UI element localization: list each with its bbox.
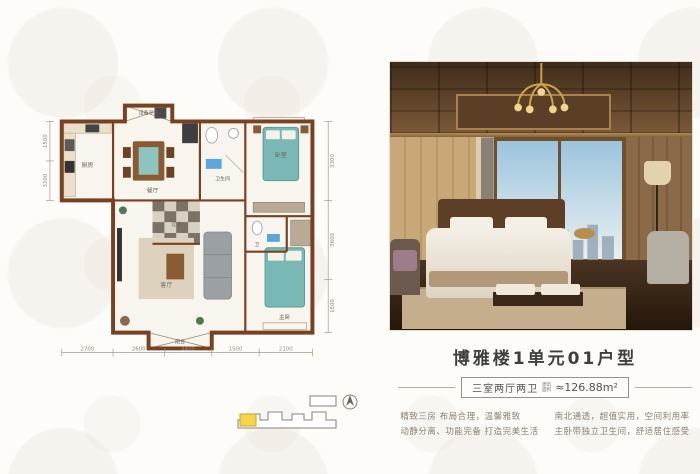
dim-left-1: 1500 — [43, 134, 49, 148]
spec-rooms: 三室两厅两卫 — [472, 380, 538, 395]
dim-bottom-1: 2700 — [81, 346, 95, 352]
divider-line-left — [398, 387, 455, 388]
room-label-bath: 卫生间 — [215, 176, 230, 183]
desc-line: 精致三房 布局合理，温馨雅致 — [400, 410, 538, 425]
room-label-dining: 餐厅 — [147, 187, 159, 195]
room-label-kitchen: 厨房 — [81, 161, 93, 169]
dim-bottom-2: 2600 — [132, 346, 146, 352]
room-label-platform: 设备平台 — [139, 110, 159, 117]
dim-right-3: 1500 — [330, 299, 336, 313]
photo-bench-cushion — [541, 284, 580, 295]
brochure-page: 厨房 餐厅 卫生间 卧室 过道 客厅 卫 主卧 阳台 设备平台 2700 260… — [0, 0, 700, 474]
dim-bottom-3: 4400 — [181, 346, 195, 352]
area-label-bottom: 面积 — [542, 388, 551, 393]
spec-row: 三室两厅两卫 建筑 面积 ≈126.88m² — [398, 377, 692, 398]
dim-right-1: 3300 — [330, 153, 336, 167]
interior-photo — [390, 62, 692, 330]
floor-plan-drawing: 厨房 餐厅 卫生间 卧室 过道 客厅 卫 主卧 阳台 设备平台 2700 260… — [42, 96, 344, 366]
divider-line-right — [635, 387, 692, 388]
area-label: 建筑 面积 — [542, 383, 551, 393]
room-label-living: 客厅 — [160, 281, 172, 289]
chandelier-icon — [493, 62, 590, 132]
photo-side-table — [574, 228, 595, 239]
unit-info: 博雅楼1单元01户型 三室两厅两卫 建筑 面积 ≈126.88m² 精致三房 布… — [398, 344, 692, 440]
photo-floor-lamp — [644, 161, 671, 185]
spec-box: 三室两厅两卫 建筑 面积 ≈126.88m² — [461, 377, 629, 398]
floor-plan: 厨房 餐厅 卫生间 卧室 过道 客厅 卫 主卧 阳台 设备平台 2700 260… — [42, 96, 344, 366]
dimension-line-left — [46, 121, 54, 200]
highlighted-unit — [240, 414, 256, 426]
desc-line: 南北通透，超值实用，空间利用率 — [555, 410, 690, 425]
dim-bottom-4: 1500 — [229, 346, 243, 352]
building-key-plan — [236, 390, 362, 434]
dim-left-2: 3300 — [43, 173, 49, 187]
photo-armchair-right — [647, 231, 689, 285]
desc-line: 主卧带独立卫生间，舒适居住感受 — [555, 425, 690, 440]
description-col-1: 精致三房 布局合理，温馨雅致 动静分离、功能完备 打造完美生活 — [400, 410, 538, 440]
room-label-bedroom: 卧室 — [275, 151, 287, 159]
description-col-2: 南北通透，超值实用，空间利用率 主卧带独立卫生间，舒适居住感受 — [555, 410, 690, 440]
dim-right-2: 3600 — [330, 232, 336, 246]
dim-bottom-5: 2100 — [279, 346, 293, 352]
desc-line: 动静分离、功能完备 打造完美生活 — [400, 425, 538, 440]
description: 精致三房 布局合理，温馨雅致 动静分离、功能完备 打造完美生活 南北通透，超值实… — [398, 410, 692, 440]
photo-bench-cushion — [496, 284, 535, 295]
north-arrow-icon — [343, 395, 357, 409]
area-value: ≈126.88m² — [555, 381, 618, 394]
unit-title: 博雅楼1单元01户型 — [398, 344, 692, 369]
photo-accent-pillow — [393, 250, 417, 271]
room-label-master: 主卧 — [279, 313, 291, 321]
room-label-balcony: 阳台 — [175, 339, 185, 346]
room-label-corridor: 过道 — [171, 221, 181, 228]
room-label-master-bath: 卫 — [255, 242, 260, 248]
